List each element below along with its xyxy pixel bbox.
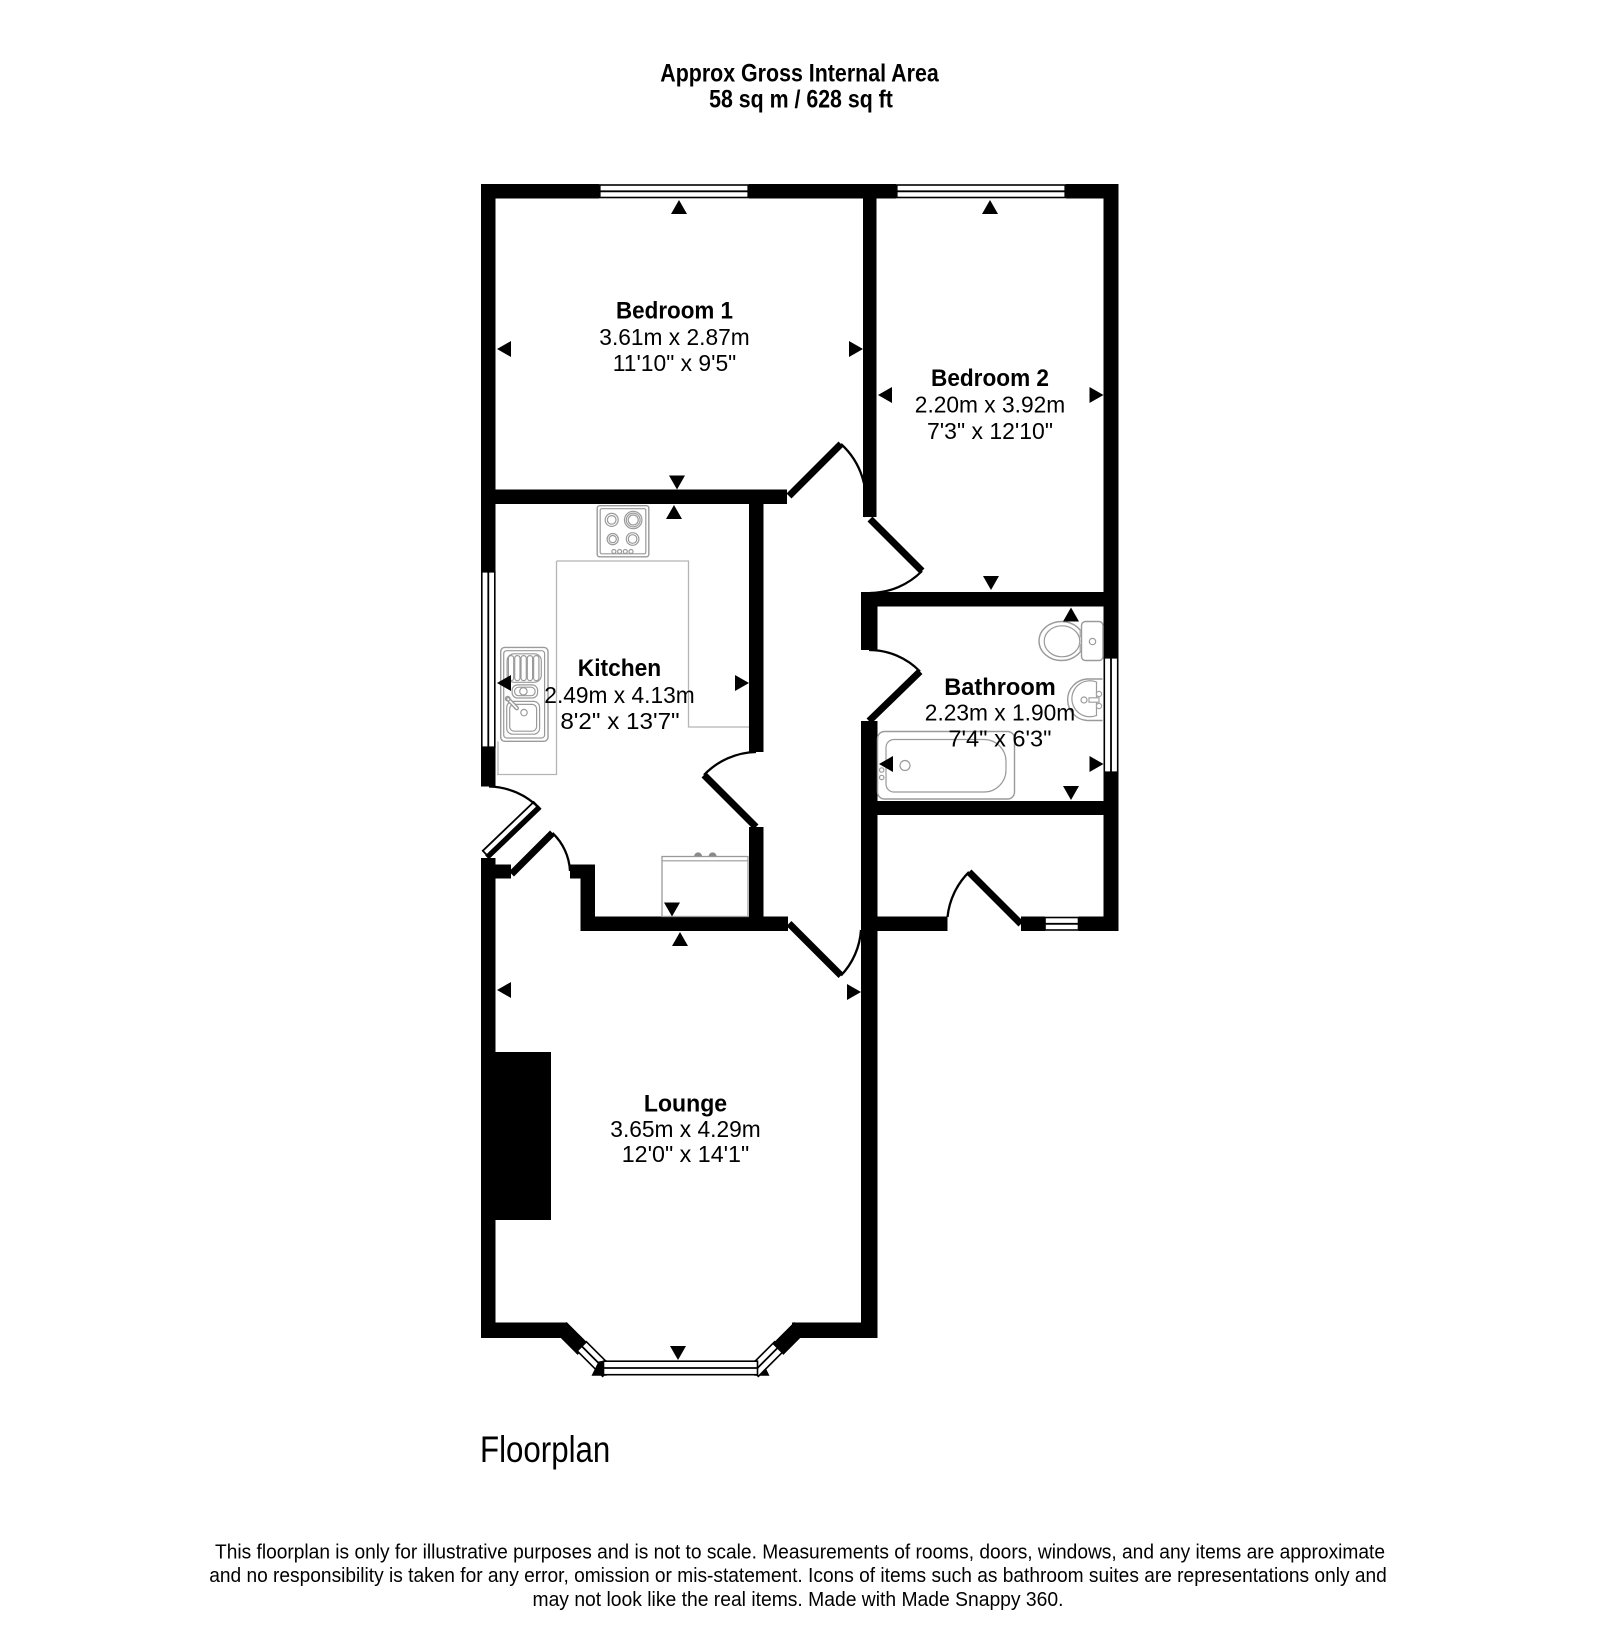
svg-text:3.65m x 4.29m: 3.65m x 4.29m — [610, 1116, 760, 1142]
svg-text:2.23m x 1.90m: 2.23m x 1.90m — [925, 700, 1075, 726]
svg-text:2.20m x 3.92m: 2.20m x 3.92m — [915, 392, 1065, 418]
svg-text:11'10" x 9'5": 11'10" x 9'5" — [613, 350, 737, 376]
svg-text:58 sq m / 628 sq ft: 58 sq m / 628 sq ft — [709, 86, 893, 114]
svg-text:Floorplan: Floorplan — [480, 1428, 610, 1470]
svg-text:Approx Gross Internal Area: Approx Gross Internal Area — [660, 59, 939, 87]
svg-text:3.61m x 2.87m: 3.61m x 2.87m — [599, 324, 749, 350]
svg-text:7'3" x 12'10": 7'3" x 12'10" — [927, 418, 1053, 444]
svg-text:This floorplan is only for ill: This floorplan is only for illustrative … — [215, 1542, 1385, 1564]
svg-text:Bedroom 2: Bedroom 2 — [931, 366, 1049, 392]
svg-text:Kitchen: Kitchen — [578, 656, 661, 682]
svg-text:7'4" x 6'3": 7'4" x 6'3" — [948, 726, 1051, 752]
svg-text:2.49m x 4.13m: 2.49m x 4.13m — [544, 682, 694, 708]
svg-text:8'2" x 13'7": 8'2" x 13'7" — [560, 708, 679, 734]
svg-text:Bathroom: Bathroom — [944, 675, 1056, 701]
svg-text:may not look like the real ite: may not look like the real items. Made w… — [533, 1589, 1064, 1611]
svg-text:Bedroom 1: Bedroom 1 — [616, 299, 733, 325]
svg-text:12'0" x 14'1": 12'0" x 14'1" — [622, 1141, 750, 1167]
svg-text:Lounge: Lounge — [644, 1092, 727, 1118]
svg-text:and no responsibility is taken: and no responsibility is taken for any e… — [209, 1565, 1387, 1587]
